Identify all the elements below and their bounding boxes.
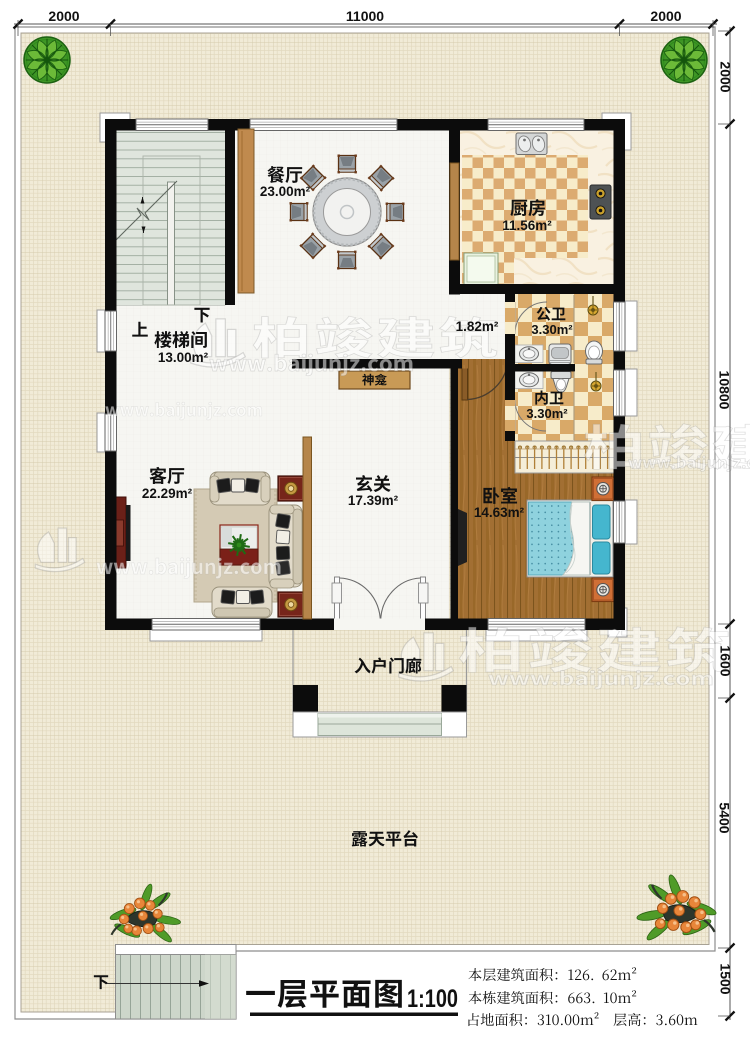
svg-text:1500: 1500 [717,963,733,994]
svg-text:10800: 10800 [716,371,732,410]
svg-text:17.39m²: 17.39m² [348,493,399,508]
svg-text:13.00m²: 13.00m² [158,350,209,365]
svg-text:14.63m²: 14.63m² [474,505,525,520]
svg-text:3.30m²: 3.30m² [526,406,568,421]
svg-text:11.56m²: 11.56m² [502,218,552,233]
svg-text:1600: 1600 [717,645,733,676]
svg-text:1:100: 1:100 [407,985,458,1013]
svg-text:23.00m²: 23.00m² [260,184,311,199]
svg-text:2000: 2000 [48,8,79,24]
svg-text:11000: 11000 [346,8,384,24]
svg-text:2000: 2000 [650,8,681,24]
svg-text:1.82m²: 1.82m² [456,319,499,334]
svg-text:22.29m²: 22.29m² [142,486,193,501]
svg-text:3.30m²: 3.30m² [531,322,573,337]
svg-text:5400: 5400 [716,802,732,833]
svg-text:2000: 2000 [717,61,733,92]
